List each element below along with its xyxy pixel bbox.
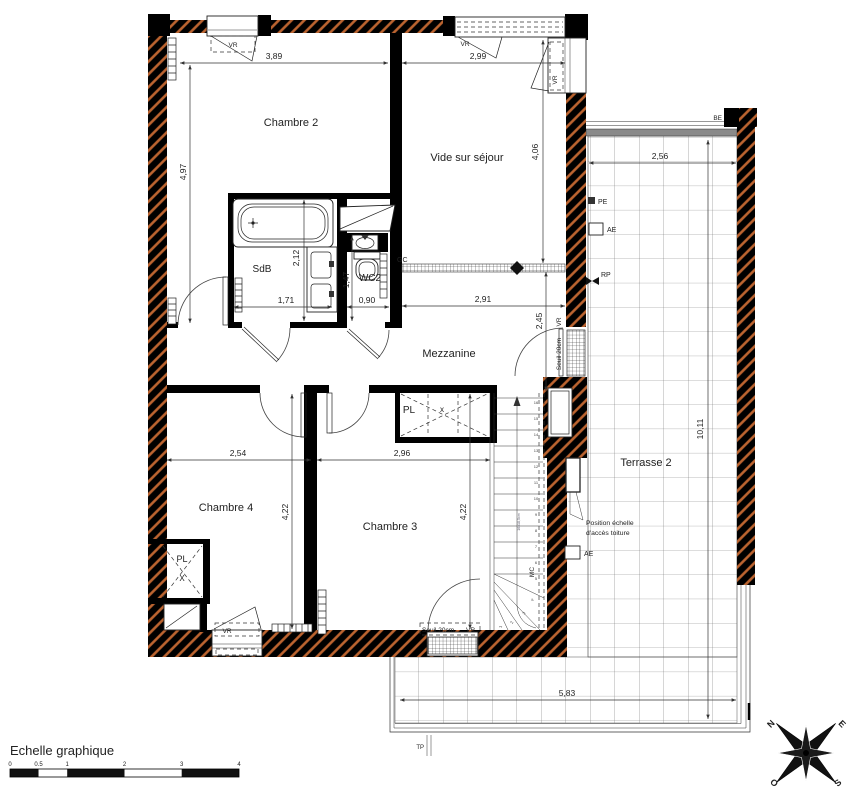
room-label-chambre3: Chambre 3 [363,521,417,533]
ae-label-bottom: AE [584,551,594,558]
door-sdb-leaf1 [242,329,277,362]
door-terrace-sill [567,330,585,376]
vr-label-ch2: VR [228,42,237,49]
scale-bar: Echelle graphique 0 0.5 1 2 3 4 [8,743,241,777]
wall-mezz-b [304,385,329,393]
wall-bottom [148,630,567,657]
scale-tick-4: 4 [237,762,241,768]
door-wc-leaf2 [349,329,380,357]
room-label-vide: Vide sur séjour [430,152,504,164]
stair-winders [494,574,544,630]
stair-num: 11 [534,480,539,485]
gc-label: GC [397,257,408,264]
closet-mezz-x-label: x [440,405,444,414]
roof-ladder-symbol [566,458,580,492]
dim-171: 1,71 [278,295,295,305]
room-label-mezzanine: Mezzanine [422,348,475,360]
stair-num: 12 [534,464,539,469]
scale-seg-2 [39,769,68,777]
dim-256: 2,56 [652,151,669,161]
washbasin-tap-2 [329,291,334,297]
compass-n: N [765,718,777,730]
seuil-label-terrace: Seuil 20cm [556,338,563,370]
window-stair-sill [428,637,477,654]
dim-389: 3,89 [266,51,283,61]
dim-583: 5,83 [559,688,576,698]
terrace-top-band [586,129,737,136]
door-ch2-arc [178,277,226,325]
washbasin-counter [307,247,337,312]
dim-497: 4,97 [178,163,188,180]
stair-num: 9 [535,512,538,517]
dim-090: 0,90 [359,295,376,305]
terrace-wall-stub [739,108,757,127]
scale-bar-title: Echelle graphique [10,743,114,758]
terrace-be-block [724,108,739,127]
room-label-terrasse2: Terrasse 2 [620,457,671,469]
room-label-wc2: WC2 [359,273,382,284]
vr-label-right: VR [552,75,559,84]
staircase: 16 15 14 13 12 11 10 9 8 7 6 5 4 3 2 1 1… [490,393,544,630]
room-label-sdb: SdB [253,264,272,275]
door-sdb-leaf2 [244,327,279,360]
stair-num: 16 [534,400,539,405]
stair-num: 8 [535,528,538,533]
scale-seg-5 [182,769,239,777]
floor-plan-page: VR VR VR VR Seuil 20cm VR Seuil 20cm VR [0,0,866,800]
seuil-label-bottom: Seuil 20cm [422,627,454,634]
tp-label: TP [416,745,424,751]
dim-299: 2,99 [470,51,487,61]
wall-pier-2 [443,16,455,36]
stair-num: 4 [530,597,535,603]
compass-s: S [832,777,843,788]
wall-pl-right [490,393,497,443]
wall-hall-b [228,322,242,328]
fixtures: PL x PL X [163,38,487,634]
wall-plch4-right [203,539,210,604]
door-ch4-arc [260,393,304,437]
door-ch3-leaf [327,393,332,433]
door-wc-leaf1 [347,331,378,359]
wall-pier-1 [258,15,271,36]
rp-label: RP [601,272,611,279]
closet-ch4-x-label: X [179,574,185,583]
stair-num: 13 [534,448,539,453]
wall-corner-ne [565,14,588,40]
wall-right-lower [547,458,567,632]
wall-left [148,20,167,657]
dim-245: 2,45 [534,312,544,329]
stair-num: 3 [521,610,527,616]
interior-walls [148,33,497,632]
ladder-note-1: Position échelle [586,520,634,527]
compass-e: E [836,718,847,729]
wall-hall-d [385,322,402,328]
stair-num: 10 [534,496,539,501]
vr-label-ch4: VR [222,628,231,635]
stair-riser-note: 16x18,5cm [517,513,521,531]
stair-num: 7 [535,544,538,549]
door-wc-arc [378,330,389,358]
dim-296: 2,96 [394,448,411,458]
dim-212: 2,12 [291,249,301,266]
scale-tick-0: 0 [8,762,12,768]
terrace-tiles-main [588,136,737,657]
washbasin-tap-1 [329,261,334,267]
ae-label-top: AE [607,227,617,234]
door-ch2-leaf [223,277,228,325]
wall-plch4-post [200,604,207,632]
stair-up-arrow [514,396,521,406]
mc-label: MC [529,567,536,577]
scale-tick-1: 1 [66,762,70,768]
gc-diamond [510,261,524,275]
pe-symbol [588,197,595,204]
dim-147: 1,47 [341,271,351,288]
vr-label-terrace-door: VR [556,317,563,326]
exterior-walls [148,14,588,657]
compass-center [803,750,809,756]
ae-symbol-top [589,223,603,235]
closet-mezz-label: PL [403,405,416,416]
scale-tick-3: 3 [180,762,184,768]
dim-422b: 4,22 [458,503,468,520]
wall-hall-c [290,322,347,328]
dim-422a: 4,22 [280,503,290,520]
window-ch2 [207,16,258,36]
floor-plan-drawing: VR VR VR VR Seuil 20cm VR Seuil 20cm VR [0,0,866,800]
wall-mezz-c [369,385,497,393]
room-label-chambre4: Chambre 4 [199,502,253,514]
wall-mezz-a [167,385,260,393]
window-ch4 [212,630,262,656]
door-sdb-arc [277,328,290,361]
scale-tick-2: 2 [123,762,127,768]
window-stair-shaft [548,388,572,437]
pe-label: PE [598,199,608,206]
radiator-hall [168,298,176,324]
dim-1011: 10,11 [695,418,705,439]
dim-291: 2,91 [475,294,492,304]
radiator-ch3 [318,590,326,634]
vr-label-vide: VR [460,41,469,48]
wall-pl-left [395,393,400,443]
wall-pl-bottom [395,437,497,443]
dim-254: 2,54 [230,448,247,458]
gc-strip [402,264,565,272]
wall-plch4-bottom [148,598,210,604]
scale-seg-1 [10,769,39,777]
terrace-right-wall [737,127,755,585]
closet-ch4-label: PL [176,554,187,564]
stair-num: 1 [498,624,503,628]
compass-rose: N E S O [747,694,866,800]
compass-o: O [768,777,780,789]
window-ch4-casement [214,607,261,629]
ladder-note-2: d'accès toiture [586,530,630,537]
stair-num: 2 [509,620,515,625]
stair-num: 14 [534,432,539,437]
guardrail: GC [397,257,565,275]
toilet-tank [354,252,380,259]
ae-symbol-bottom [565,546,580,559]
scale-seg-4 [125,769,182,777]
stair-num: 6 [535,560,538,565]
vr-label-stair: VR [466,627,475,634]
wall-corner-nw [148,14,170,36]
door-ch3-arc [329,393,369,433]
bathtub-drain [251,221,254,224]
be-label: BE [713,115,722,122]
window-right-casement [531,42,549,91]
scale-tick-05: 0.5 [34,762,43,768]
scale-seg-3 [67,769,124,777]
wall-ch2-vide [390,33,402,328]
wall-sdb-top [228,193,390,199]
wall-plch4-top [148,539,210,544]
room-label-chambre2: Chambre 2 [264,117,318,129]
dim-406: 4,06 [530,143,540,160]
stair-num: 15 [534,416,539,421]
